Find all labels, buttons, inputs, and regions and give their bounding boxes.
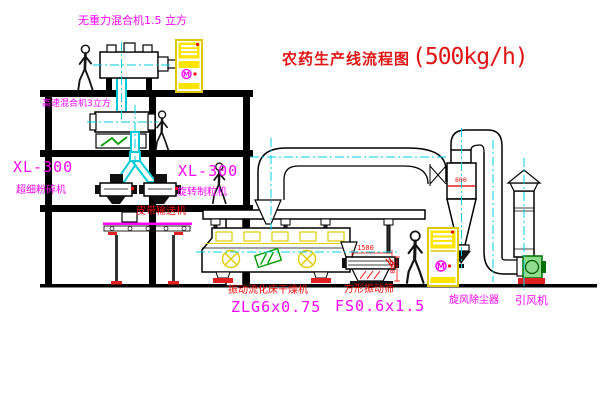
induced-draft-fan (508, 170, 546, 284)
svg-text:M: M (183, 71, 190, 79)
label-square-vibrating-sieve: 方形振动筛 (344, 285, 394, 295)
person-top-floor (78, 45, 92, 89)
label-high-speed-mixer: 高速混合机3立方 (42, 100, 111, 109)
person-ground (407, 231, 424, 282)
drawing-canvas: M (0, 0, 600, 403)
label-fluid-bed-dryer: 振动流化床干燥机 (228, 286, 308, 296)
label-cyclone-dust-collector: 旋风除尘器 (449, 296, 499, 306)
label-belt-conveyor: 皮带输送机 (136, 207, 186, 217)
control-cabinet-right: M (428, 228, 458, 286)
label-xl300-mid: XL-300 (178, 164, 238, 179)
person-third-floor (156, 111, 169, 150)
control-cabinet-top: M (176, 40, 202, 92)
indicator-dot (193, 72, 196, 75)
fan-base (518, 278, 545, 284)
belt-conveyor (103, 212, 192, 285)
title-capacity: (500kg/h) (412, 44, 528, 70)
label-gravity-free-mixer: 无重力混合机1.5 立方 (78, 15, 187, 26)
label-xl300-left: XL-300 (13, 160, 73, 175)
label-ultrafine-mill: 超细粉碎机 (16, 186, 66, 196)
label-rotary-granulator: 旋转制粒机 (177, 188, 227, 198)
floor-slab-top (40, 90, 253, 97)
floor-slab-mid (40, 150, 253, 157)
indicator-dot (196, 43, 199, 46)
ground-line (40, 284, 597, 288)
indicator-dot (448, 264, 451, 267)
title-text: 农药生产线流程图 (282, 48, 410, 69)
label-induced-draft-fan: 引风机 (515, 295, 548, 306)
high-speed-mixer (87, 112, 158, 153)
dimension-sieve-length: 1500 (357, 245, 374, 252)
dimension-cyclone-marking: 800 (455, 177, 467, 184)
label-square-vibrating-sieve-model: FS0.6x1.5 (335, 299, 425, 314)
granulator-left (95, 174, 137, 204)
diagram-title: 农药生产线流程图 (500kg/h) (282, 44, 528, 70)
dimension-sieve-height: 540 (388, 261, 395, 274)
svg-text:M: M (437, 262, 445, 271)
indicator-dot (451, 230, 454, 233)
label-fluid-bed-dryer-model: ZLG6x0.75 (231, 300, 321, 315)
